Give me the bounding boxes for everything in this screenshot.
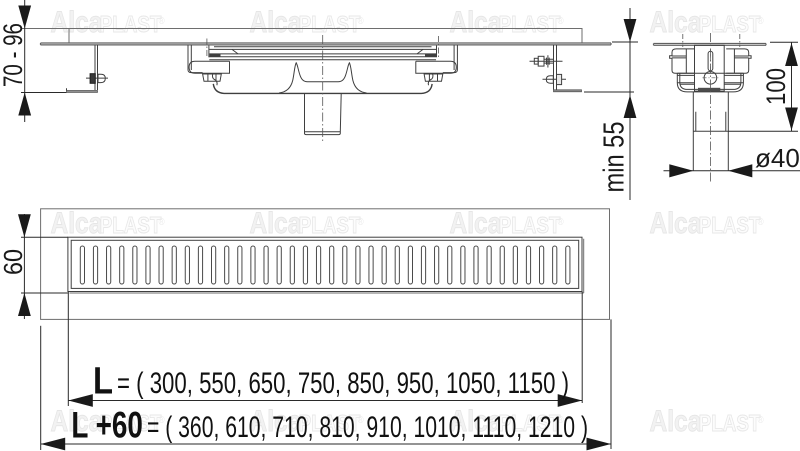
svg-text:PLAST: PLAST: [499, 213, 561, 238]
svg-text:®: ®: [159, 216, 165, 227]
svg-text:PLAST: PLAST: [699, 411, 761, 436]
svg-text:PLAST: PLAST: [699, 12, 761, 37]
svg-text:®: ®: [758, 414, 764, 425]
svg-text:100: 100: [761, 68, 791, 105]
svg-text:Alca: Alca: [449, 206, 502, 240]
svg-text:PLAST: PLAST: [299, 213, 361, 238]
svg-text:70 - 96: 70 - 96: [0, 23, 28, 87]
svg-text:60: 60: [0, 249, 28, 275]
svg-text:Alca: Alca: [649, 5, 702, 39]
svg-text:®: ®: [558, 15, 564, 26]
svg-text:®: ®: [558, 216, 564, 227]
svg-text:Alca: Alca: [249, 206, 302, 240]
svg-text:PLAST: PLAST: [100, 12, 162, 37]
svg-text:PLAST: PLAST: [299, 12, 361, 37]
svg-text:PLAST: PLAST: [699, 213, 761, 238]
svg-text:= ( 360, 610, 710, 810, 910, 1: = ( 360, 610, 710, 810, 910, 1010, 1110,…: [147, 411, 588, 444]
svg-text:Alca: Alca: [50, 206, 103, 240]
svg-text:ø40: ø40: [755, 143, 800, 173]
svg-text:®: ®: [358, 216, 364, 227]
svg-text:®: ®: [758, 216, 764, 227]
svg-text:Alca: Alca: [50, 5, 103, 39]
svg-text:Alca: Alca: [649, 404, 702, 438]
svg-text:®: ®: [358, 15, 364, 26]
svg-text:L: L: [93, 361, 113, 403]
svg-text:Alca: Alca: [449, 5, 502, 39]
svg-text:Alca: Alca: [649, 206, 702, 240]
svg-text:PLAST: PLAST: [499, 12, 561, 37]
svg-text:®: ®: [758, 15, 764, 26]
svg-text:®: ®: [159, 15, 165, 26]
svg-text:Alca: Alca: [249, 5, 302, 39]
svg-text:PLAST: PLAST: [100, 213, 162, 238]
svg-text:L +60: L +60: [71, 405, 142, 446]
svg-text:= ( 300, 550, 650, 750, 850, 9: = ( 300, 550, 650, 750, 850, 950, 1050, …: [117, 367, 569, 400]
svg-text:min 55: min 55: [599, 122, 631, 193]
